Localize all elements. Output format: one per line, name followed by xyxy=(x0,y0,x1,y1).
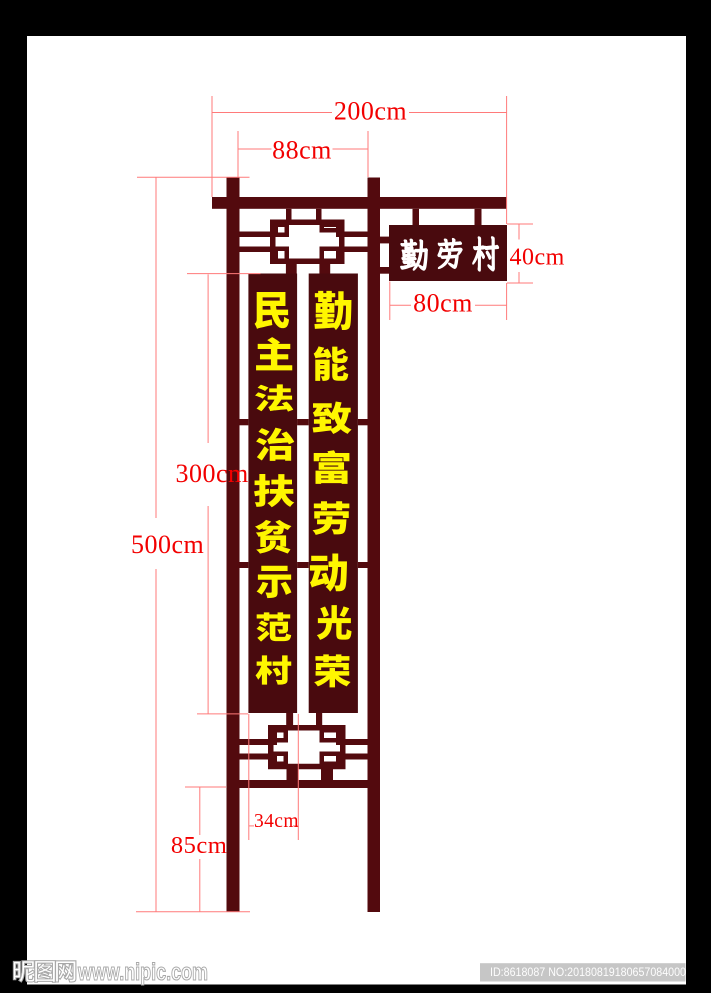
svg-text:80cm: 80cm xyxy=(413,289,473,318)
svg-text:200cm: 200cm xyxy=(334,97,407,126)
svg-text:34cm: 34cm xyxy=(254,811,299,832)
svg-text:www.nipic.com: www.nipic.com xyxy=(77,959,208,986)
svg-text:500cm: 500cm xyxy=(131,530,204,559)
svg-text:ID:8618087 NO:2018081918065708: ID:8618087 NO:20180819180657084000 xyxy=(490,967,686,979)
svg-text:85cm: 85cm xyxy=(171,832,227,859)
svg-text:40cm: 40cm xyxy=(510,245,565,271)
svg-text:88cm: 88cm xyxy=(272,136,332,165)
svg-text:300cm: 300cm xyxy=(176,459,249,488)
